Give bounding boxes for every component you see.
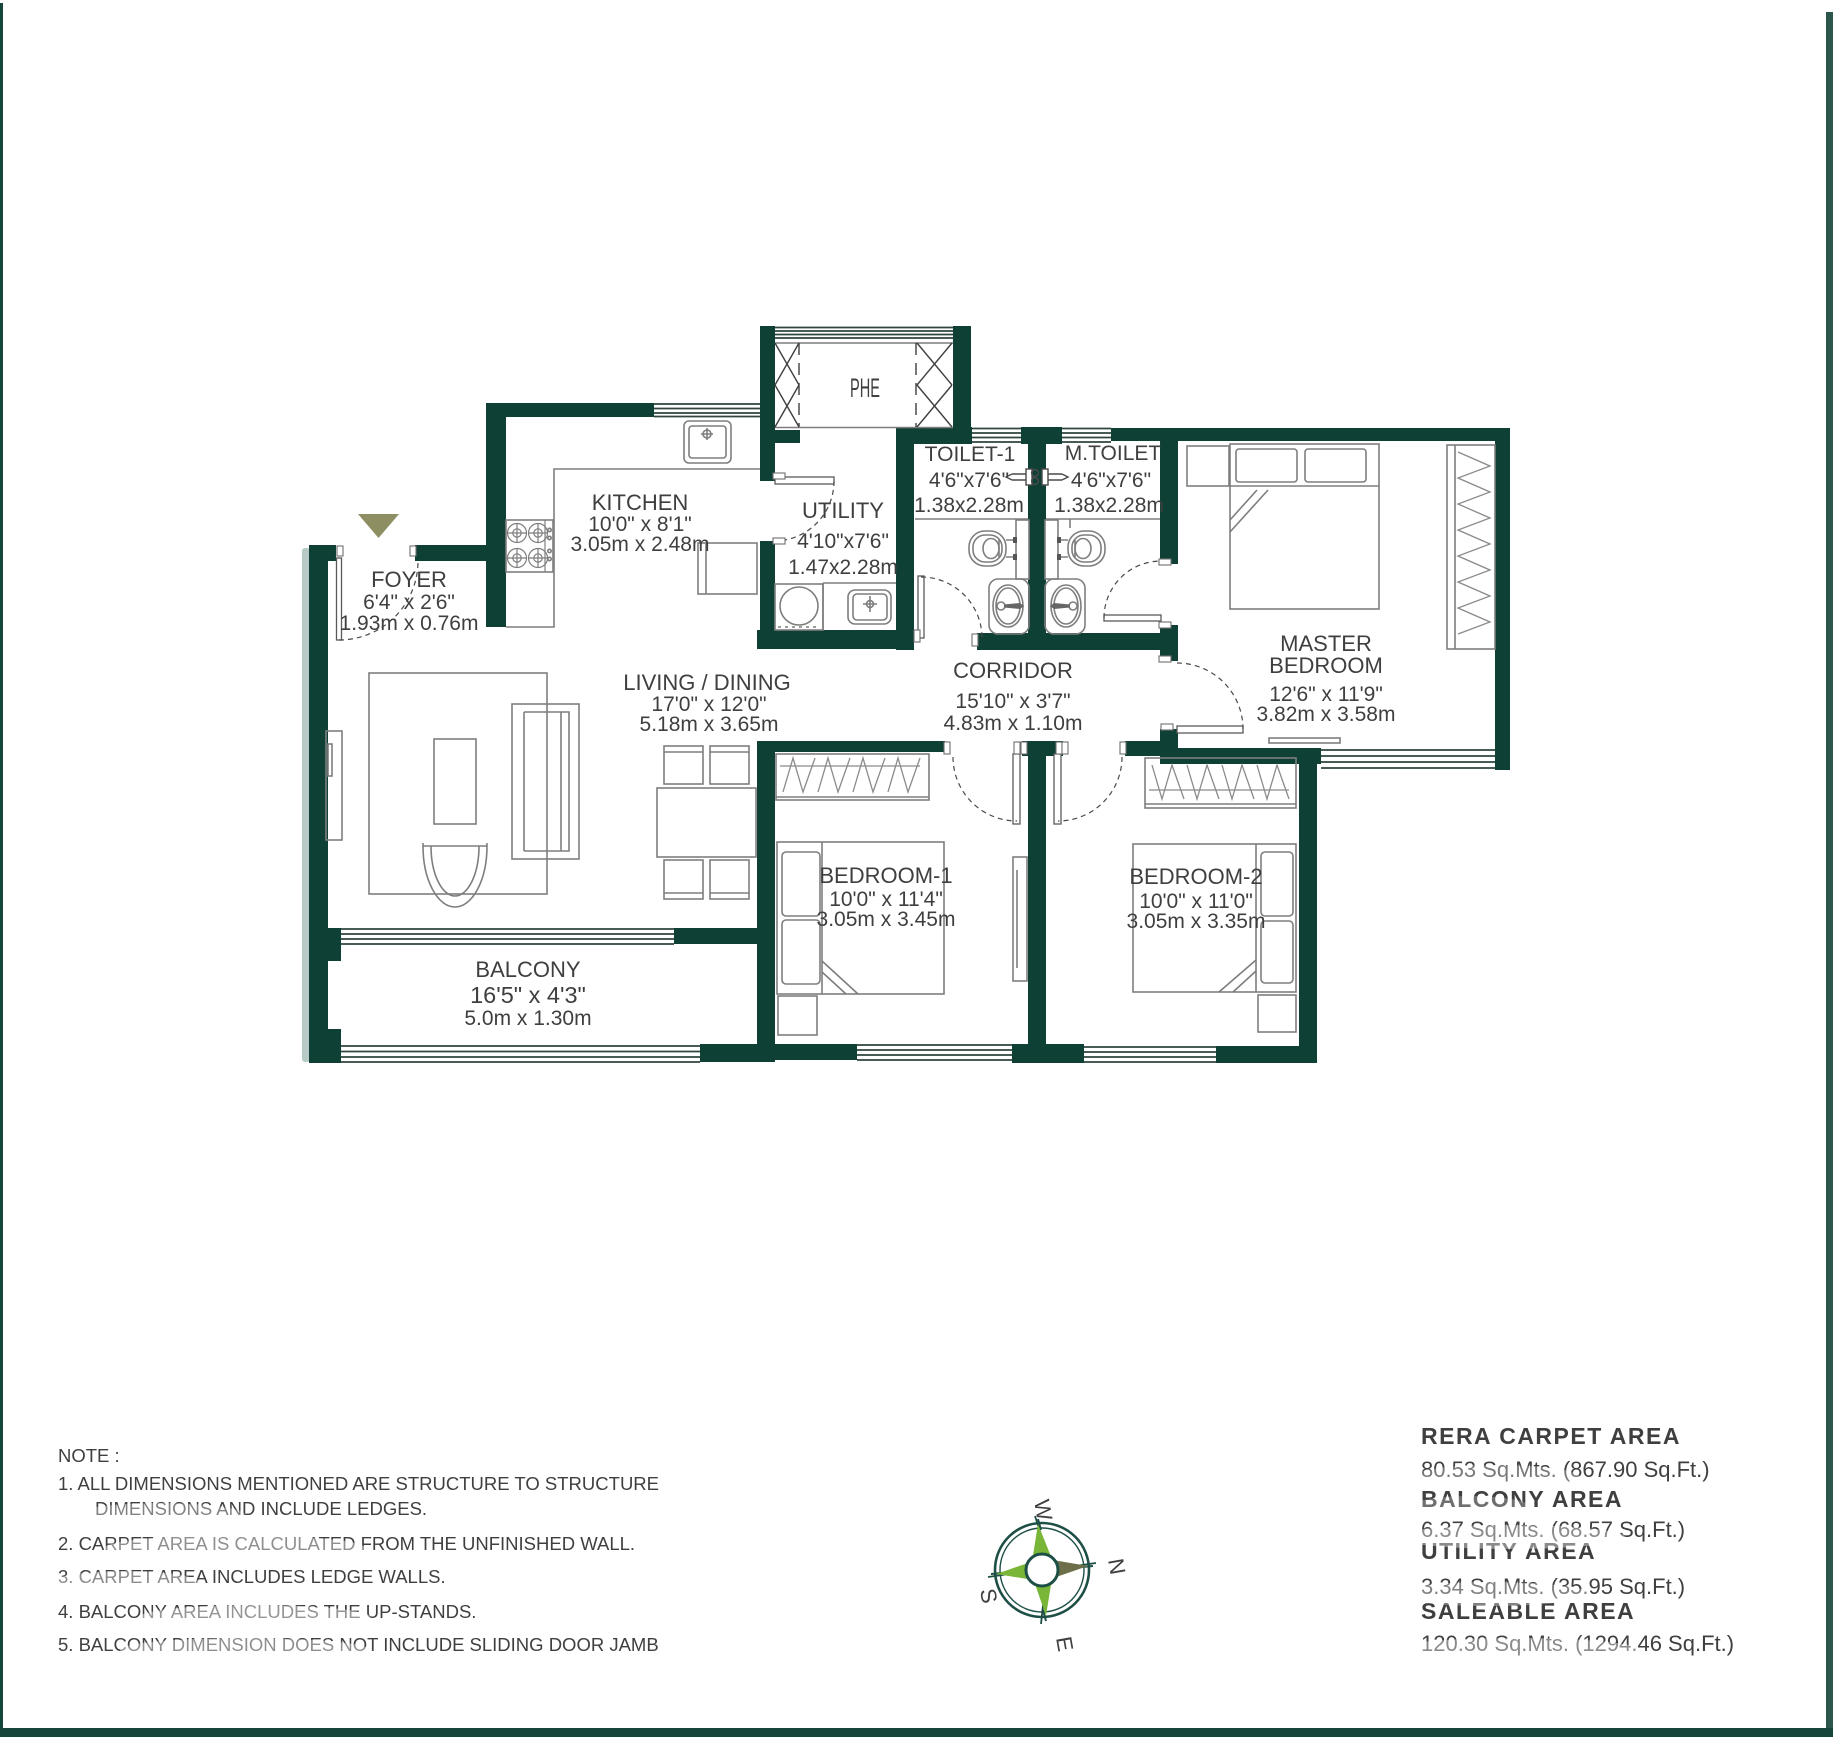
svg-text:3.05m x 3.35m: 3.05m x 3.35m [1127,910,1266,933]
svg-text:4'6"x7'6": 4'6"x7'6" [929,469,1009,492]
svg-text:FOYER: FOYER [371,567,447,592]
svg-text:M.TOILET: M.TOILET [1065,442,1162,465]
svg-text:N: N [1103,1557,1130,1577]
svg-text:BALCONY: BALCONY [475,957,580,982]
svg-text:4'10"x7'6": 4'10"x7'6" [797,530,889,553]
svg-text:5.0m x 1.30m: 5.0m x 1.30m [464,1007,591,1030]
svg-text:16'5" x 4'3": 16'5" x 4'3" [470,982,586,1008]
svg-text:E: E [1051,1635,1078,1654]
svg-text:5.18m x 3.65m: 5.18m x 3.65m [640,713,779,736]
svg-text:3.05m x 3.45m: 3.05m x 3.45m [817,908,956,931]
svg-text:1.38x2.28m: 1.38x2.28m [914,494,1024,517]
svg-text:6'4" x 2'6": 6'4" x 2'6" [363,591,455,614]
svg-text:LIVING / DINING: LIVING / DINING [623,670,790,695]
svg-text:UTILITY: UTILITY [802,498,884,523]
svg-text:1.47x2.28m: 1.47x2.28m [788,556,898,579]
svg-text:BEDROOM: BEDROOM [1269,653,1383,678]
svg-text:W: W [1029,1498,1057,1523]
svg-text:TOILET-1: TOILET-1 [925,443,1016,466]
svg-text:3.82m x 3.58m: 3.82m x 3.58m [1257,703,1396,726]
svg-text:BEDROOM-1: BEDROOM-1 [819,863,952,888]
svg-text:BEDROOM-2: BEDROOM-2 [1129,864,1262,889]
svg-text:CORRIDOR: CORRIDOR [953,658,1073,683]
svg-text:4.83m x 1.10m: 4.83m x 1.10m [944,712,1083,735]
svg-text:15'10" x 3'7": 15'10" x 3'7" [955,690,1070,713]
svg-text:1.93m x 0.76m: 1.93m x 0.76m [340,612,479,635]
svg-text:RERA CARPET AREA: RERA CARPET AREA [1421,1423,1681,1449]
svg-text:S: S [975,1587,1002,1606]
svg-text:1. ALL DIMENSIONS MENTIONED A: 1. ALL DIMENSIONS MENTIONED ARE STRUCTUR… [58,1473,659,1494]
svg-text:1.38x2.28m: 1.38x2.28m [1054,494,1164,517]
svg-text:PHE: PHE [850,373,880,403]
svg-text:4'6"x7'6": 4'6"x7'6" [1071,469,1151,492]
svg-text:KITCHEN: KITCHEN [592,490,689,515]
svg-text:3.05m x 2.48m: 3.05m x 2.48m [571,533,710,556]
svg-text:NOTE :: NOTE : [58,1445,120,1466]
